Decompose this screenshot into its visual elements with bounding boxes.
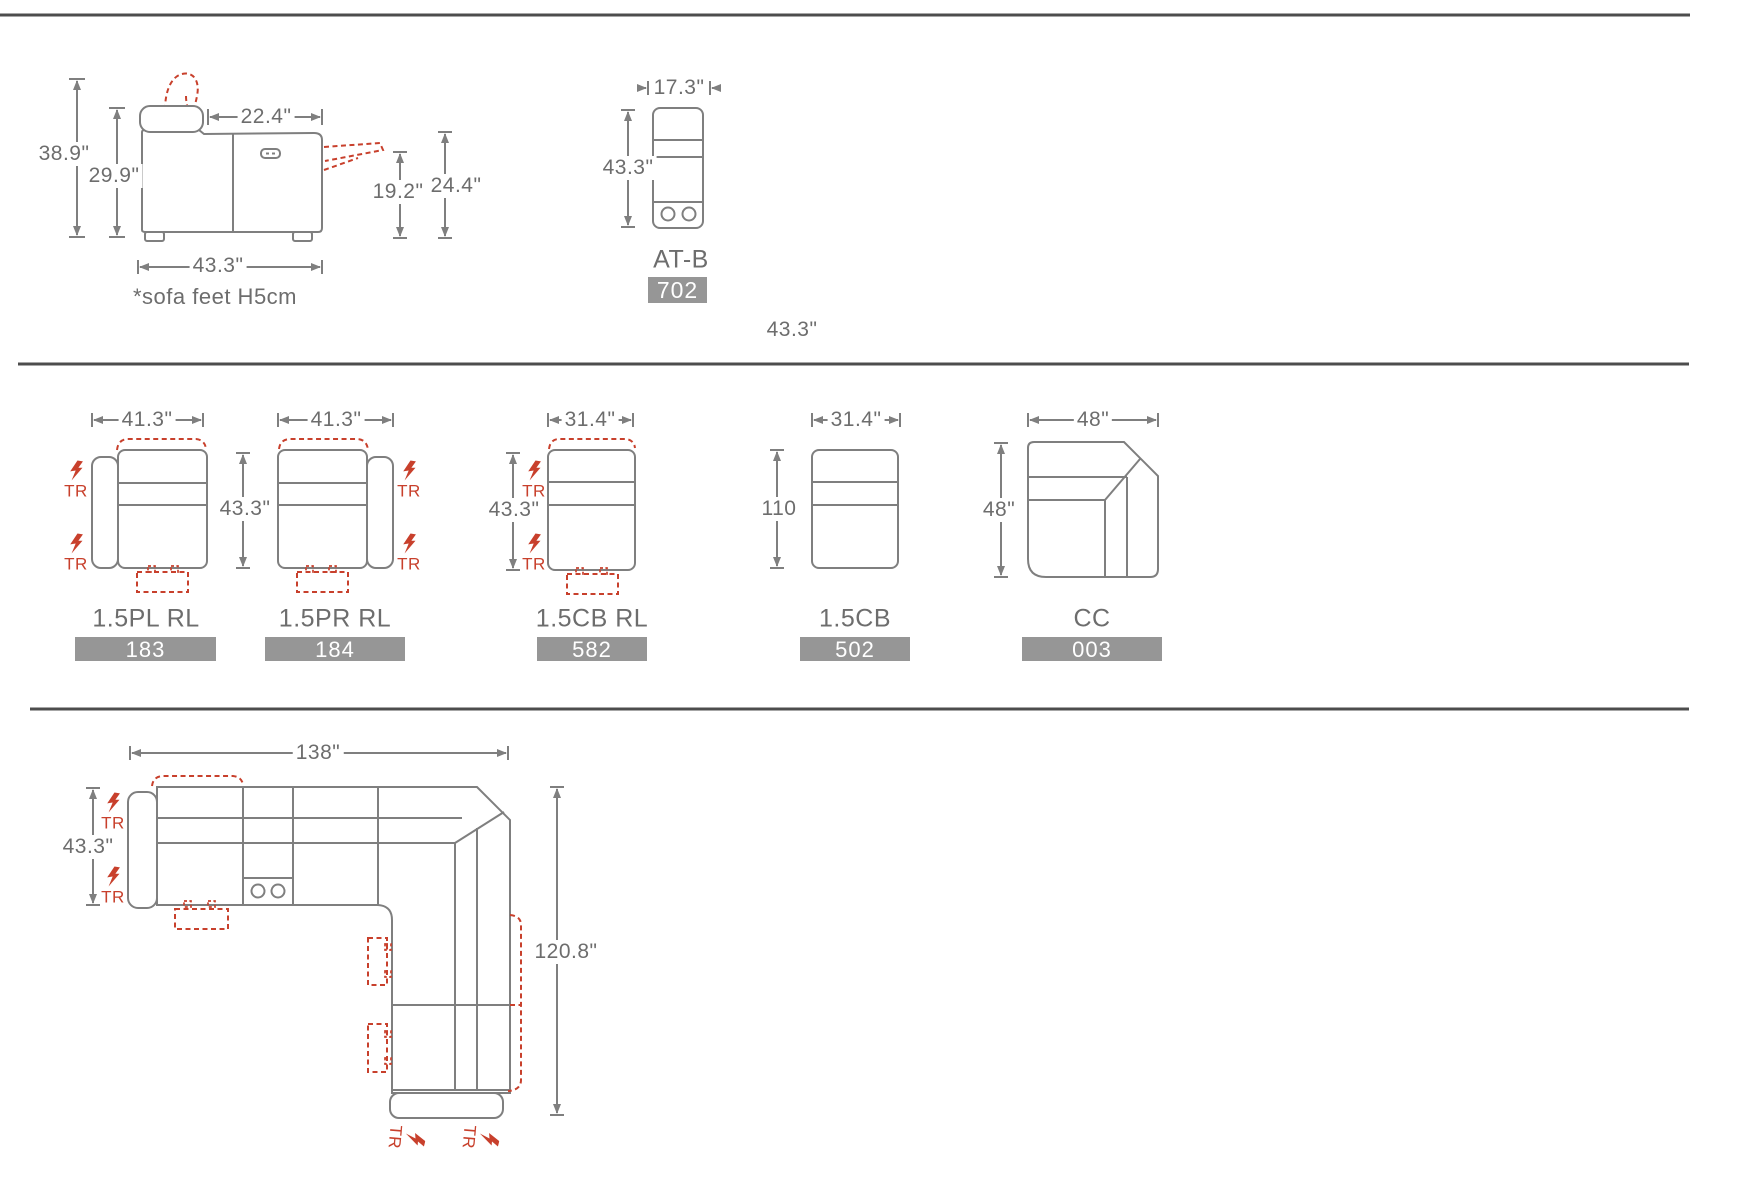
spec-sheet: 38.9" 29.9" 22.4" 19.2" 24.4" 43.3" *sof… [0, 0, 1745, 1200]
module-1-5pr-rl-drawing [278, 439, 393, 592]
dimension-lines [69, 79, 1158, 1115]
dim-module5-width: 48" [1074, 408, 1112, 432]
dim-module3-depth: 43.3" [486, 498, 543, 522]
touch-recline-marker: TR [522, 534, 546, 573]
dim-module3-width: 31.4" [562, 408, 619, 432]
module4-label: 1.5CB [819, 605, 891, 634]
line-art [0, 0, 1745, 1200]
console-top-view-drawing [653, 108, 703, 228]
lightning-icon [479, 1130, 500, 1147]
touch-recline-marker: TR [64, 534, 88, 573]
dim-overall-depth: 43.3" [190, 254, 247, 278]
dim-module2-width: 41.3" [308, 408, 365, 432]
touch-recline-marker: TR [460, 1125, 501, 1152]
lightning-icon [68, 534, 83, 554]
dim-footrest-top-height: 24.4" [428, 174, 485, 198]
dim-sectional-depth: 43.3" [60, 835, 117, 859]
lightning-icon [401, 534, 416, 554]
dim-module4-depth: 110 [759, 497, 800, 521]
module1-label: 1.5PL RL [92, 605, 199, 634]
dim-console-depth: 43.3" [600, 156, 657, 180]
dim-sectional-length: 120.8" [531, 940, 600, 964]
console-code-badge: 702 [648, 277, 707, 303]
lightning-icon [401, 461, 416, 481]
module4-code-badge: 502 [800, 637, 910, 661]
sofa-feet-note: *sofa feet H5cm [133, 284, 297, 310]
touch-recline-marker: TR [522, 461, 546, 500]
module-1-5pl-rl-drawing [92, 439, 207, 592]
dim-module1-depth: 43.3" [217, 497, 274, 521]
module3-label: 1.5CB RL [536, 605, 648, 634]
sectional-plan-drawing [128, 776, 521, 1118]
touch-recline-marker: TR [397, 461, 421, 500]
touch-recline-marker: TR [386, 1125, 427, 1152]
console-label: AT-B [653, 246, 709, 275]
dim-seat-depth: 22.4" [238, 105, 295, 129]
dim-loose: 43.3" [764, 318, 821, 342]
dim-module5-depth: 48" [980, 498, 1018, 522]
touch-recline-marker: TR [101, 867, 125, 906]
module-1-5cb-rl-drawing [548, 439, 635, 594]
lightning-icon [105, 867, 120, 887]
dim-sectional-width: 138" [293, 741, 344, 765]
module1-code-badge: 183 [75, 637, 216, 661]
dim-footrest-height: 19.2" [370, 180, 427, 204]
touch-recline-marker: TR [397, 534, 421, 573]
dim-back-height: 29.9" [86, 164, 143, 188]
lightning-icon [405, 1130, 426, 1147]
lightning-icon [526, 534, 541, 554]
module5-code-badge: 003 [1022, 637, 1162, 661]
module2-label: 1.5PR RL [279, 605, 391, 634]
module5-label: CC [1073, 605, 1110, 634]
lightning-icon [68, 461, 83, 481]
touch-recline-marker: TR [101, 793, 125, 832]
module-1-5cb-drawing [812, 450, 898, 568]
dim-module1-width: 41.3" [119, 408, 176, 432]
lightning-icon [526, 461, 541, 481]
touch-recline-marker: TR [64, 461, 88, 500]
module3-code-badge: 582 [537, 637, 647, 661]
sofa-side-view-drawing [140, 74, 383, 241]
module-cc-drawing [1028, 442, 1158, 577]
dim-console-width: 17.3" [651, 76, 708, 100]
lightning-icon [105, 793, 120, 813]
dim-module4-width: 31.4" [828, 408, 885, 432]
module2-code-badge: 184 [265, 637, 405, 661]
dim-overall-height: 38.9" [36, 142, 93, 166]
